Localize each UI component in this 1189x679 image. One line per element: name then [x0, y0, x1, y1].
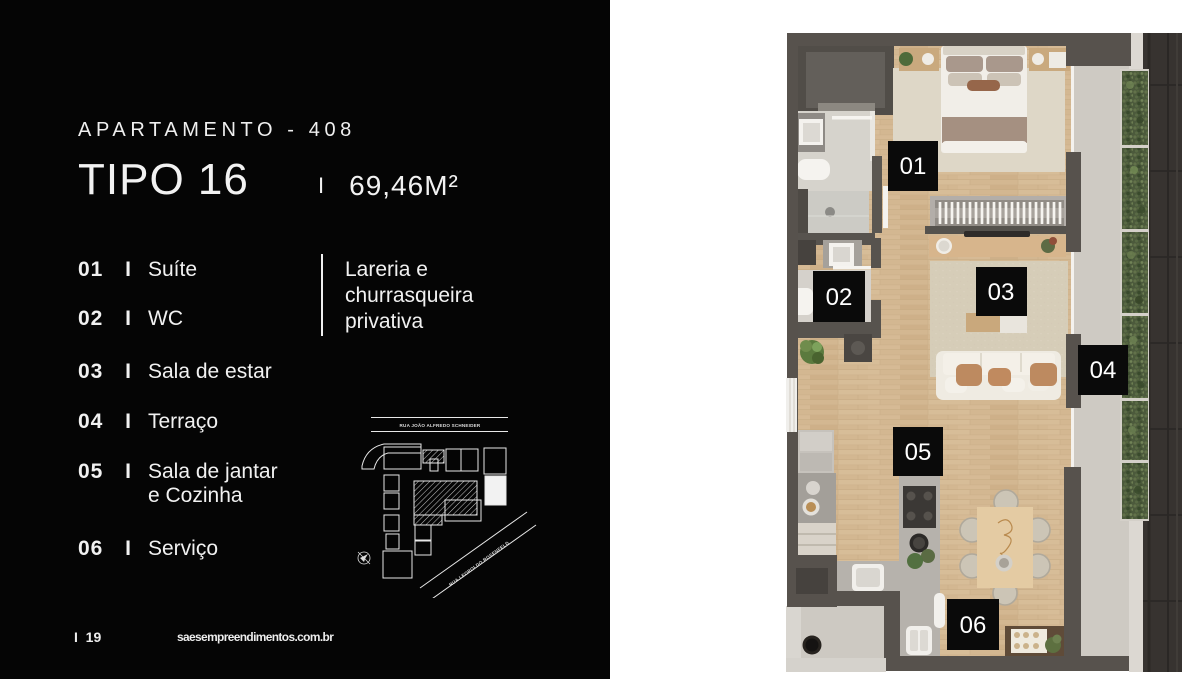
svg-text:06: 06 — [960, 612, 987, 639]
svg-text:05: 05 — [905, 439, 932, 466]
svg-text:RUA JOÃO ALFREDO SCHNEIDER: RUA JOÃO ALFREDO SCHNEIDER — [400, 422, 481, 428]
svg-text:02: 02 — [826, 284, 853, 311]
svg-text:RUA LEOPOLDO ROSENFELD: RUA LEOPOLDO ROSENFELD — [448, 540, 510, 587]
svg-text:04: 04 — [1090, 357, 1117, 384]
svg-text:03: 03 — [988, 279, 1015, 306]
svg-text:01: 01 — [900, 153, 927, 180]
